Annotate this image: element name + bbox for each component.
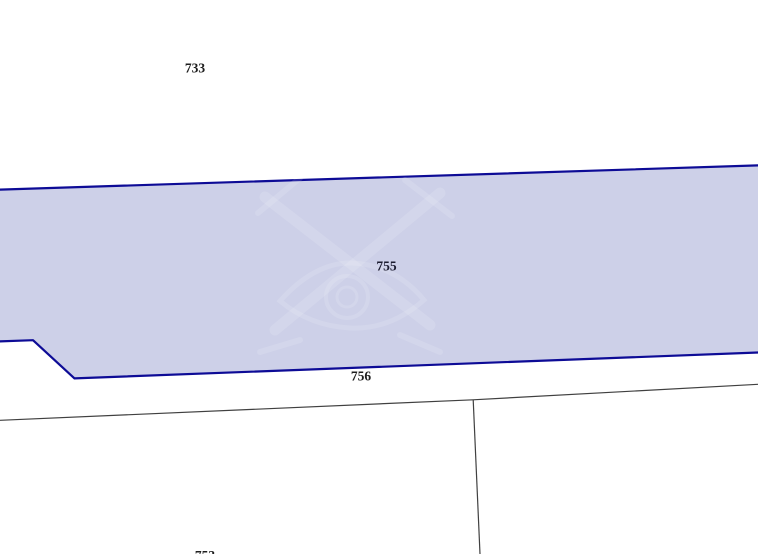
svg-text:733: 733: [185, 61, 206, 76]
svg-text:756: 756: [351, 369, 372, 384]
svg-text:755: 755: [376, 259, 397, 274]
svg-text:753: 753: [195, 548, 216, 554]
